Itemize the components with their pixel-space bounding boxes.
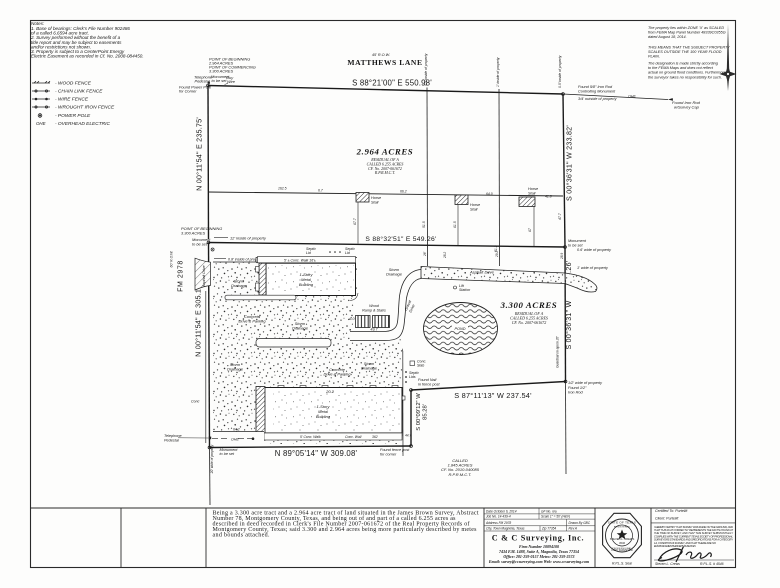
svg-text:3.300 ACRES: 3.300 ACRES	[181, 230, 205, 235]
svg-text:actual on ground flood con: actual on ground flood conditions. Furth…	[648, 71, 727, 75]
svg-text:Stall: Stall	[371, 200, 379, 204]
svg-text:1' wide of property: 1' wide of property	[577, 266, 609, 270]
svg-text:Client: Purtell/t: Client: Purtell/t	[655, 517, 679, 521]
svg-text:64.2: 64.2	[233, 428, 240, 432]
svg-text:to be set: to be set	[568, 243, 584, 247]
svg-text:- POWER POLE: - POWER POLE	[55, 113, 91, 119]
svg-text:S 87°11'13" W 237.54': S 87°11'13" W 237.54'	[454, 391, 532, 400]
svg-text:C & C Surveying, Inc.: C & C Surveying, Inc.	[492, 534, 585, 543]
svg-text:45' R.O.W.: 45' R.O.W.	[372, 53, 390, 57]
svg-text:26': 26'	[423, 251, 427, 257]
svg-text:for corner: for corner	[380, 452, 397, 456]
svg-text:R.P.L.S. # 4546: R.P.L.S. # 4546	[700, 562, 724, 566]
svg-text:R.P.R.M.C.T.: R.P.R.M.C.T.	[449, 472, 472, 477]
svg-text:Station: Station	[459, 288, 470, 292]
svg-text:61.5: 61.5	[453, 221, 457, 228]
svg-text:in fence post: in fence post	[418, 382, 440, 386]
svg-text:LAND SURVEYOR: LAND SURVEYOR	[611, 549, 633, 552]
svg-text:Asphalt Drive: Asphalt Drive	[202, 265, 206, 287]
svg-text:28.9: 28.9	[560, 253, 564, 260]
svg-text:- CHAIN LINK FENCE: - CHAIN LINK FENCE	[55, 89, 103, 95]
svg-text:and bounds attached.: and bounds attached.	[213, 533, 271, 539]
svg-text:PLAIN.: PLAIN.	[648, 55, 660, 59]
svg-text:w/Survey Cap: w/Survey Cap	[674, 105, 700, 110]
svg-text:CALLED 6.255 ACRES: CALLED 6.255 ACRES	[367, 162, 404, 166]
svg-text:Stall: Stall	[528, 191, 536, 195]
svg-text:66.2: 66.2	[400, 190, 407, 194]
svg-text:Drive & Parking: Drive & Parking	[238, 319, 266, 324]
svg-text:to the FEMA Maps and does: to the FEMA Maps and does not reflect	[648, 66, 714, 70]
svg-text:0.6' wide of property: 0.6' wide of property	[577, 248, 612, 252]
svg-text:Building: Building	[316, 414, 331, 419]
svg-text:Slab: Slab	[417, 364, 424, 368]
svg-text:R.P.R.M.C.T.: R.P.R.M.C.T.	[374, 171, 395, 175]
svg-text:Drainage: Drainage	[361, 366, 378, 371]
svg-text:Drainage: Drainage	[386, 272, 403, 277]
svg-text:362: 362	[372, 435, 378, 439]
svg-text:CF. No. 2007-061672: CF. No. 2007-061672	[368, 167, 402, 171]
svg-text:0.3' inside of property: 0.3' inside of property	[424, 53, 428, 86]
svg-text:to be set: to be set	[220, 452, 236, 456]
svg-text:N 00°11'54" E 235.75': N 00°11'54" E 235.75'	[195, 117, 204, 191]
svg-text:POND: POND	[455, 327, 466, 331]
svg-text:OHE: OHE	[36, 121, 46, 126]
svg-text:Electric Easement as recorded: Electric Easement as recorded in Cf. No.…	[31, 54, 144, 59]
svg-text:Monument: Monument	[220, 448, 239, 452]
svg-text:Scale 1" = 50' (H&V): Scale 1" = 50' (H&V)	[541, 515, 570, 519]
svg-text:Drawn By GBC: Drawn By GBC	[569, 521, 591, 525]
svg-text:47.7: 47.7	[558, 213, 562, 220]
svg-text:Lids: Lids	[409, 375, 416, 379]
svg-text:RESIDUAL OF A: RESIDUAL OF A	[370, 158, 399, 162]
svg-text:STATE OF TEXAS: STATE OF TEXAS	[608, 521, 636, 525]
svg-text:S 00°36'31" W: S 00°36'31" W	[565, 300, 573, 349]
svg-text:2.964 ACRES: 2.964 ACRES	[356, 147, 414, 157]
svg-text:Found 1/2": Found 1/2"	[568, 386, 587, 390]
svg-text:Stall: Stall	[470, 207, 478, 211]
svg-text:Wire: Wire	[227, 79, 236, 84]
svg-text:FM 2978: FM 2978	[178, 260, 185, 292]
svg-text:from FEMA Map Panel Number 483: from FEMA Map Panel Number 48339C0355G	[648, 31, 726, 35]
svg-text:Found Nail: Found Nail	[418, 378, 437, 382]
svg-text:Telephone: Telephone	[164, 434, 182, 438]
svg-text:Iron Rod: Iron Rod	[568, 390, 583, 394]
svg-text:- WOOD FENCE: - WOOD FENCE	[55, 81, 92, 87]
svg-text:Conc. Wall: Conc. Wall	[345, 435, 362, 439]
svg-text:29.2: 29.2	[495, 251, 499, 258]
svg-text:R.P.L.S. Seal: R.P.L.S. Seal	[612, 562, 632, 566]
svg-text:28.2: 28.2	[443, 252, 447, 259]
svg-text:Ramp & Stairs: Ramp & Stairs	[362, 308, 386, 312]
svg-text:Drainage: Drainage	[227, 367, 244, 372]
svg-text:Horse: Horse	[470, 203, 480, 207]
svg-text:Rev A: Rev A	[569, 527, 578, 531]
svg-text:67.7: 67.7	[353, 218, 357, 225]
svg-text:SCALES OUTSIDE THE 100 YEAR FL: SCALES OUTSIDE THE 100 YEAR FLOOD	[648, 50, 722, 54]
svg-text:The property lies within ZONE: The property lies within ZONE 'X' as SCA…	[648, 26, 724, 30]
svg-text:5' Conc. Walk: 5' Conc. Walk	[300, 435, 321, 439]
svg-text:Monument: Monument	[568, 239, 587, 243]
svg-text:ENCROACHMENTS EXCEPT AS SHOWN.: ENCROACHMENTS EXCEPT AS SHOWN.	[654, 544, 696, 548]
svg-text:the surveyor takes no resp: the surveyor takes no responsibility for…	[648, 75, 722, 79]
svg-text:60' R.O.W.: 60' R.O.W.	[170, 251, 174, 268]
svg-text:- WIRE FENCE: - WIRE FENCE	[55, 97, 89, 103]
svg-text:Job No. 14-439-4: Job No. 14-439-4	[486, 515, 511, 519]
svg-text:20' wide of property: 20' wide of property	[210, 444, 214, 474]
svg-text:Certified To: Purtell/t: Certified To: Purtell/t	[655, 509, 688, 513]
svg-text:OHE: OHE	[231, 437, 239, 441]
svg-text:12' inside of property: 12' inside of property	[230, 236, 267, 241]
svg-text:S 88°21'00" E 550.98': S 88°21'00" E 550.98'	[352, 79, 432, 88]
svg-text:162.5: 162.5	[278, 187, 287, 191]
svg-text:Wood: Wood	[369, 304, 380, 308]
svg-text:S 00°09'12" W: S 00°09'12" W	[416, 393, 422, 431]
svg-text:for Corner: for Corner	[179, 89, 197, 94]
svg-text:City, Town Magnolia, Texas: City, Town Magnolia, Texas	[486, 527, 525, 531]
svg-text:1/2' wide of property: 1/2' wide of property	[568, 381, 603, 385]
svg-text:67: 67	[528, 228, 532, 232]
svg-text:Date October 6, 2014: Date October 6, 2014	[486, 509, 517, 513]
svg-text:to be set: to be set	[212, 78, 228, 83]
svg-text:dated August 18, 2014.: dated August 18, 2014.	[648, 35, 687, 39]
svg-text:4546: 4546	[619, 541, 625, 545]
svg-text:Found 5/8" Iron Rod: Found 5/8" Iron Rod	[578, 85, 613, 89]
svg-text:GF No. n/a: GF No. n/a	[541, 509, 557, 513]
svg-text:49.7: 49.7	[370, 328, 378, 332]
svg-text:STEVEN L. CREWS: STEVEN L. CREWS	[610, 537, 635, 541]
svg-text:- WROUGHT IRON FENCE: - WROUGHT IRON FENCE	[55, 105, 115, 111]
svg-text:85.28': 85.28'	[423, 404, 429, 420]
svg-text:MATTHEWS LANE: MATTHEWS LANE	[347, 58, 422, 67]
svg-text:Email: survey@ccsurveying.com: Email: survey@ccsurveying.com Web: www.c…	[488, 559, 589, 564]
svg-text:5' ± Conc. Walk 16'±: 5' ± Conc. Walk 16'±	[284, 259, 316, 263]
svg-text:OHE: OHE	[628, 95, 636, 99]
svg-text:0.5' inside of property: 0.5' inside of property	[558, 55, 562, 88]
svg-text:64.0: 64.0	[486, 192, 493, 196]
svg-text:3/4' outside of property: 3/4' outside of property	[578, 97, 618, 101]
svg-text:51.5: 51.5	[422, 221, 426, 228]
svg-text:CF. No. 2007-061672: CF. No. 2007-061672	[512, 320, 547, 325]
svg-text:S 88°32'51" E 549.26': S 88°32'51" E 549.26'	[365, 235, 436, 243]
svg-text:Steven L. Crews: Steven L. Crews	[655, 562, 680, 566]
svg-text:6.7: 6.7	[318, 189, 323, 193]
svg-text:Building: Building	[299, 282, 314, 287]
svg-text:Horse: Horse	[528, 187, 538, 191]
svg-text:20.2: 20.2	[325, 389, 335, 394]
svg-text:Controlling Monument: Controlling Monument	[578, 89, 616, 93]
svg-text:Address FM 2978: Address FM 2978	[485, 521, 511, 525]
svg-text:N 00°11'54" E 305.16': N 00°11'54" E 305.16'	[194, 283, 203, 357]
svg-text:Guardrail on apron 20': Guardrail on apron 20'	[556, 336, 560, 368]
svg-text:Horse: Horse	[371, 196, 381, 200]
svg-text:to be set: to be set	[192, 241, 208, 246]
svg-text:Conc: Conc	[191, 400, 200, 404]
svg-text:3.300 ACRES: 3.300 ACRES	[500, 300, 558, 310]
svg-text:THIS MEANS THAT THE SUBJECT PR: THIS MEANS THAT THE SUBJECT PROPERTY	[648, 46, 730, 50]
svg-text:Asphalt Drive: Asphalt Drive	[469, 270, 495, 275]
svg-text:1' inside of property: 1' inside of property	[496, 57, 500, 87]
svg-text:Drive & Parking: Drive & Parking	[323, 372, 351, 377]
svg-text:N 89°05'14" W 309.08': N 89°05'14" W 309.08'	[275, 449, 358, 458]
svg-text:The designation is made st: The designation is made strictly accordi…	[648, 62, 719, 66]
svg-text:- OVERHEAD ELECTRIC: - OVERHEAD ELECTRIC	[55, 121, 110, 127]
svg-text:Zip 77354: Zip 77354	[541, 527, 556, 531]
svg-text:Pedestal: Pedestal	[195, 79, 210, 84]
svg-text:41.8: 41.8	[545, 195, 552, 199]
svg-text:Drainage: Drainage	[292, 326, 309, 331]
svg-text:REGISTERED: REGISTERED	[614, 527, 630, 529]
svg-text:Found fence post: Found fence post	[380, 448, 410, 452]
svg-text:3.300 ACRES: 3.300 ACRES	[209, 69, 233, 74]
svg-text:S 00°36'31" W 233.82': S 00°36'31" W 233.82'	[565, 125, 574, 201]
svg-text:Drainage: Drainage	[231, 283, 248, 288]
svg-text:Pedestal: Pedestal	[164, 438, 179, 442]
